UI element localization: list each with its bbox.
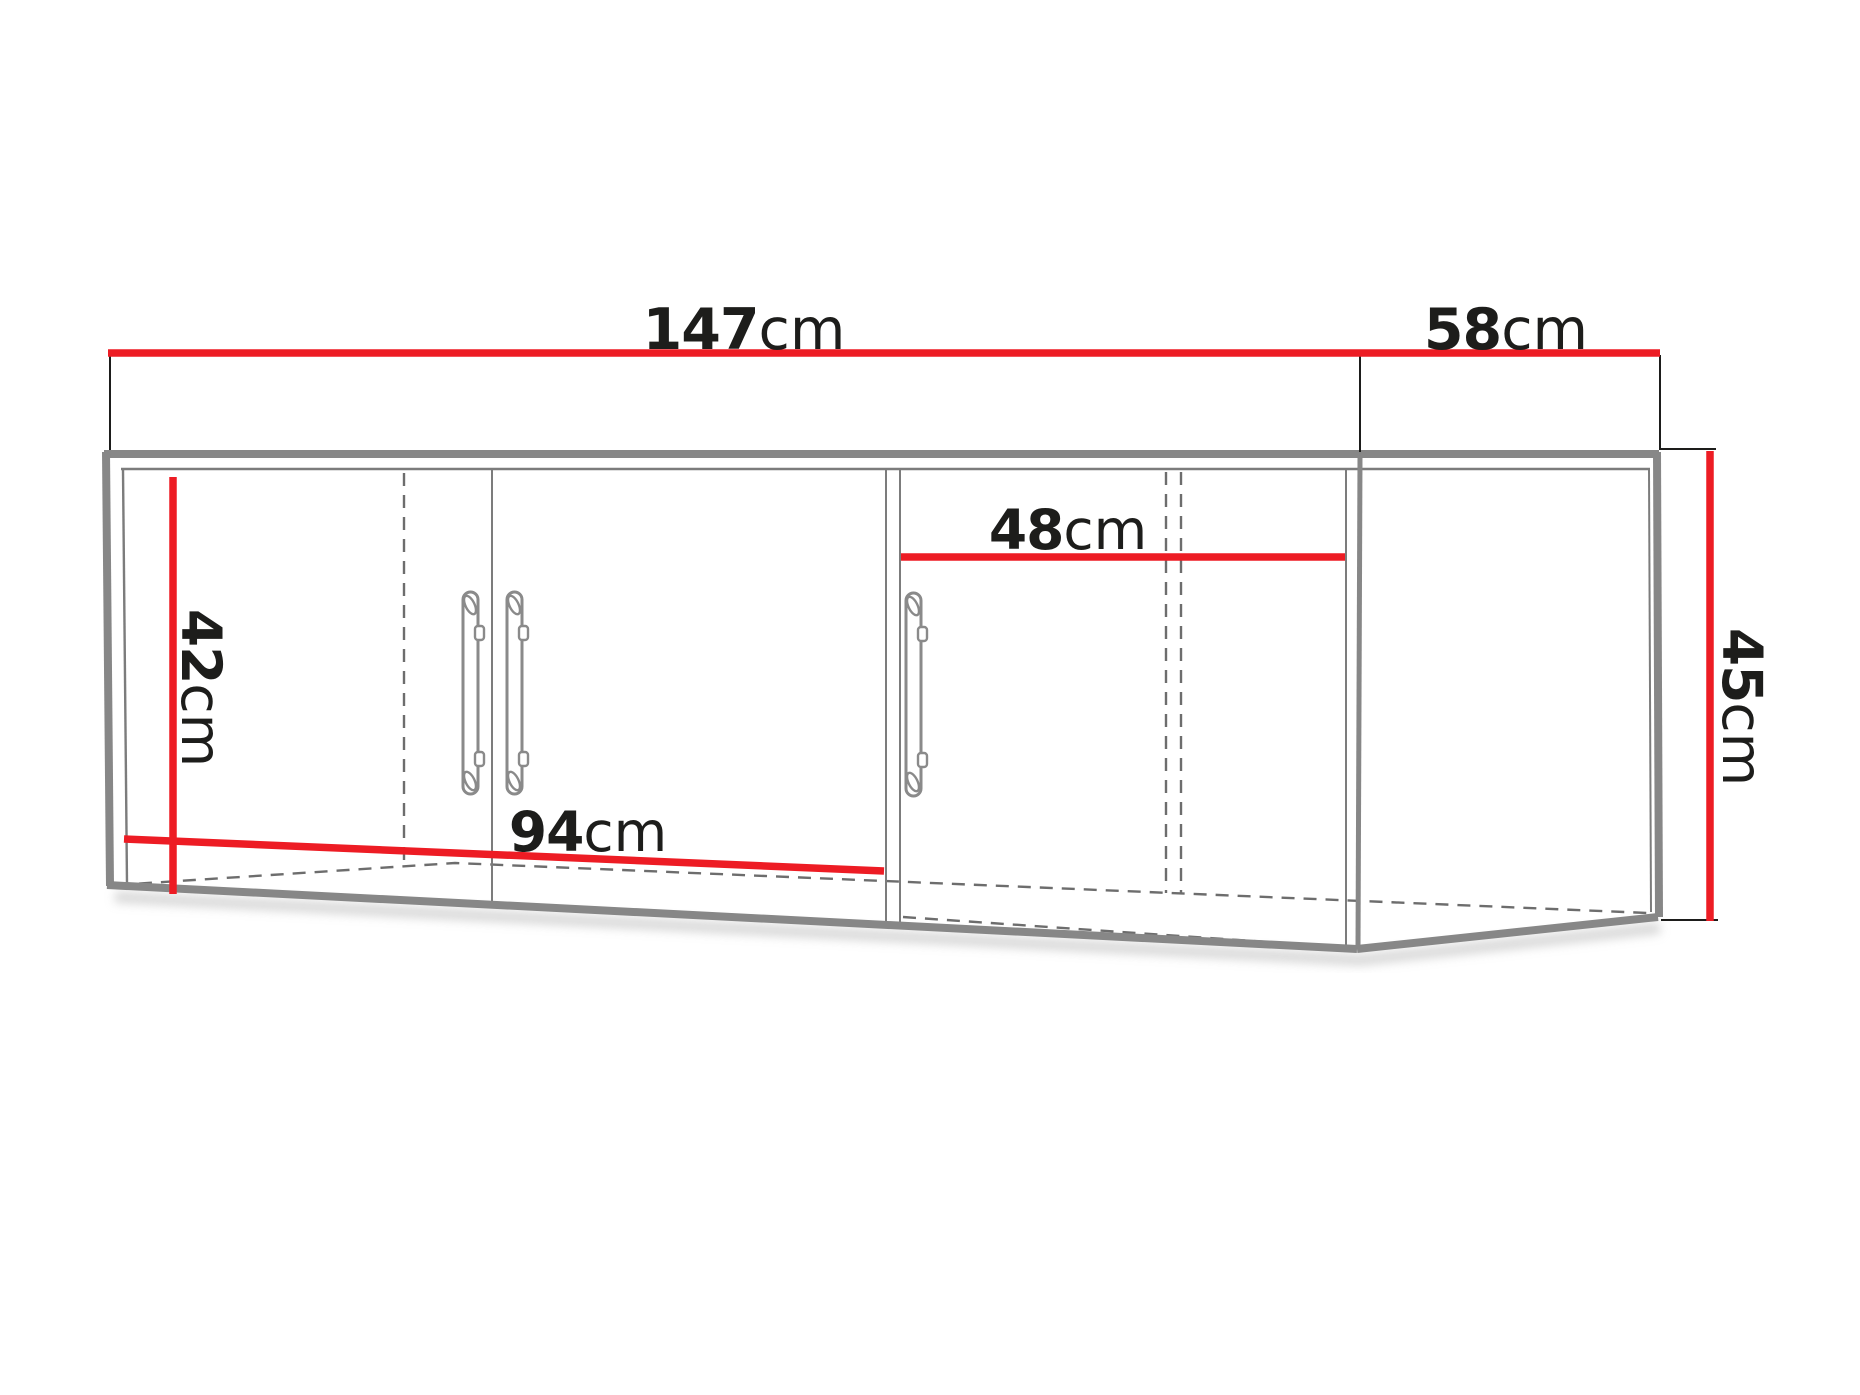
dimension-label-147cm: 147cm	[643, 297, 846, 363]
dimension-label-58cm: 58cm	[1424, 297, 1588, 363]
handle-mount-bottom	[519, 752, 528, 766]
cabinet-bottom-front-edge	[107, 885, 1357, 949]
top-dimension: 147cm 58cm	[108, 297, 1660, 452]
handle-mount-bottom	[475, 752, 484, 766]
handle-mount-top	[918, 627, 927, 641]
right-inner-edge	[1649, 470, 1651, 912]
left-inner-edge	[123, 470, 127, 884]
dimension-label-48cm: 48cm	[989, 498, 1147, 562]
dimension-label-94cm: 94cm	[509, 800, 667, 864]
door-handle-3	[905, 593, 927, 796]
door-handle-2	[506, 592, 528, 794]
cabinet-right-edge	[1657, 452, 1659, 917]
inner-dimensions: 48cm 42cm 94cm 45cm	[124, 449, 1774, 921]
handle-mount-top	[519, 626, 528, 640]
dimension-line-doors-width	[124, 839, 884, 871]
diagram-canvas: 147cm 58cm 48cm 42cm 94cm 45cm	[0, 0, 1860, 1395]
dimension-label-42cm: 42cm	[169, 609, 233, 767]
handle-mount-bottom	[918, 753, 927, 767]
cabinet-left-edge	[106, 452, 110, 886]
cabinet-body	[104, 452, 1660, 960]
handle-mount-top	[475, 626, 484, 640]
cabinet-corner-edge	[1358, 456, 1360, 947]
dimension-label-45cm: 45cm	[1710, 628, 1774, 786]
door-handle-1	[462, 592, 484, 794]
cabinet-dimension-diagram: 147cm 58cm 48cm 42cm 94cm 45cm	[0, 0, 1860, 1395]
